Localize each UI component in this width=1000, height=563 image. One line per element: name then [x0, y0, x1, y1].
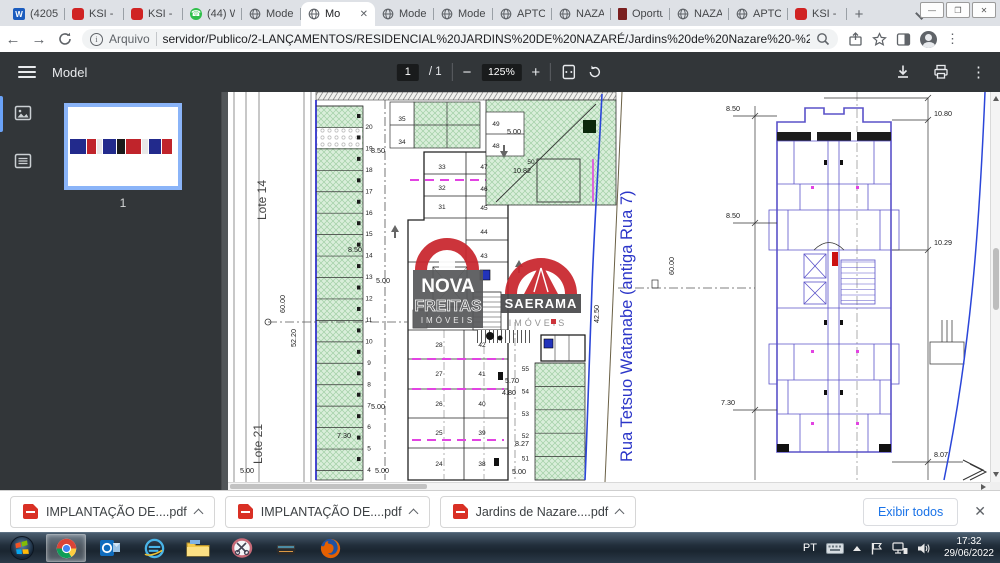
download-chip-2[interactable]: Jardins de Nazare....pdf [440, 496, 637, 528]
dimension-label: 10.29 [934, 238, 952, 247]
dimension-label: 8.50 [371, 146, 385, 155]
page-number-input[interactable]: 1 [397, 64, 419, 81]
scroll-down-arrow[interactable] [993, 472, 999, 477]
browser-tab-4[interactable]: Model [242, 2, 301, 26]
page-thumbnail[interactable] [68, 107, 178, 186]
svg-text:NOVA: NOVA [421, 276, 475, 297]
downloads-close-icon[interactable]: ✕ [974, 503, 986, 520]
new-tab-button[interactable]: + [847, 2, 871, 26]
globe-favicon-icon [441, 8, 453, 20]
ie-taskbar-icon[interactable] [134, 534, 174, 562]
tab-label: Model [399, 8, 427, 20]
browser-tab-5[interactable]: Mo✕ [301, 2, 375, 26]
page-total: / 1 [429, 66, 442, 78]
pdf-menu-icon[interactable] [18, 63, 36, 81]
tab-label: Model [266, 8, 294, 20]
download-file-name: IMPLANTAÇÃO DE....pdf [261, 505, 402, 519]
browser-tab-3[interactable]: ☎(44) Wh [183, 2, 242, 26]
stall-number: 47 [480, 164, 488, 171]
forward-icon[interactable]: → [26, 31, 52, 48]
thumbnails-view-icon[interactable] [14, 104, 32, 122]
stall-number: 45 [480, 205, 488, 212]
stall-number: 54 [522, 388, 530, 395]
stall-number: 43 [480, 253, 488, 260]
doc-favicon-icon [618, 8, 627, 20]
pdf-overflow-icon[interactable]: ⋮ [971, 63, 986, 81]
share-icon[interactable] [848, 32, 863, 47]
stall-number: 14 [365, 253, 373, 260]
zoom-icon[interactable] [816, 32, 830, 46]
chevron-up-icon[interactable] [615, 508, 625, 518]
chrome-taskbar-icon[interactable] [46, 534, 86, 562]
ksi-favicon-icon [72, 8, 84, 20]
dimension-label: 5.00 [375, 466, 389, 475]
network-icon[interactable] [892, 542, 908, 555]
maximize-button[interactable]: ❐ [946, 2, 970, 18]
thumbnail-page-number: 1 [68, 196, 178, 210]
stall-number: 6 [367, 424, 371, 431]
apartment-plan [733, 92, 986, 482]
tab-label: Oportu [632, 8, 663, 20]
dimension-label: 8.50 [348, 245, 362, 254]
svg-text:FREITAS: FREITAS [414, 298, 482, 315]
address-bar: ← → i Arquivo servidor/Publico/2-LANÇAME… [0, 26, 1000, 52]
stall-number: 49 [492, 121, 500, 128]
svg-text:IMÓVEIS: IMÓVEIS [421, 316, 475, 325]
stall-number: 41 [478, 371, 486, 378]
svg-text:IMÓVEIS: IMÓVEIS [509, 318, 568, 328]
browser-tab-9[interactable]: NAZAR [552, 2, 611, 26]
language-indicator[interactable]: PT [803, 542, 817, 554]
side-panel-icon[interactable] [896, 32, 911, 47]
zoom-out-icon[interactable]: − [463, 64, 472, 81]
stall-number: 39 [478, 430, 486, 437]
dimension-label: 52.20 [289, 329, 298, 347]
stall-number: 32 [438, 185, 446, 192]
pdf-file-icon [453, 504, 468, 519]
stall-number: 48 [492, 143, 500, 150]
stall-number: 25 [435, 430, 443, 437]
sidebar-selected-indicator [0, 96, 3, 132]
stall-number: 24 [435, 461, 443, 468]
dimension-label: 5.00 [376, 276, 390, 285]
rotate-icon[interactable] [587, 64, 603, 80]
globe-favicon-icon [382, 8, 394, 20]
stall-number: 33 [438, 164, 446, 171]
tab-label: (44) Wh [207, 8, 235, 20]
browser-tab-0[interactable]: W(4205) L [6, 2, 65, 26]
horizontal-scroll-thumb[interactable] [230, 484, 427, 489]
outlook-taskbar-icon[interactable] [90, 534, 130, 562]
system-tray: PT 17:32 29/06/2022 [803, 536, 994, 560]
sidewalk-hatch [316, 92, 616, 100]
dimension-label: 60.00 [667, 257, 676, 275]
globe-favicon-icon [249, 8, 261, 20]
stall-number: 13 [365, 274, 373, 281]
stall-number: 42 [478, 342, 486, 349]
download-chip-0[interactable]: IMPLANTAÇÃO DE....pdf [10, 496, 215, 528]
stall-number: 15 [365, 231, 373, 238]
download-icon[interactable] [895, 64, 911, 80]
pdf-viewer-body: 1 [0, 92, 1000, 490]
horizontal-scrollbar[interactable] [228, 482, 990, 490]
site-plan-drawing: Lote 14Lote 21Rua Tetsuo Watanabe (antig… [228, 92, 990, 482]
stall-number: 4 [367, 467, 371, 474]
thumbnail-panel: 1 [45, 92, 222, 490]
browser-menu-icon[interactable]: ⋮ [946, 31, 959, 47]
tab-label: Model [458, 8, 486, 20]
dimension-label: 8.07 [934, 450, 948, 459]
stall-number: 40 [478, 401, 486, 408]
dimension-label: 42.50 [592, 305, 601, 323]
svg-text:SAERAMA: SAERAMA [505, 296, 578, 311]
profile-avatar[interactable] [920, 31, 937, 48]
stall-number: 8 [367, 381, 371, 388]
browser-tab-2[interactable]: KSI - K [124, 2, 183, 26]
omnibox[interactable]: i Arquivo servidor/Publico/2-LANÇAMENTOS… [82, 29, 838, 49]
tab-label: APTOS [753, 8, 781, 20]
browser-tab-11[interactable]: NAZAR [670, 2, 729, 26]
dimension-label: 5.00 [507, 127, 521, 136]
stall-number: 51 [522, 456, 530, 463]
back-icon[interactable]: ← [0, 31, 26, 48]
street-name-label: Rua Tetsuo Watanabe (antiga Rua 7) [618, 190, 636, 462]
tab-label: Mo [325, 8, 353, 20]
stall-number: 17 [365, 188, 373, 195]
taskbar-clock[interactable]: 17:32 29/06/2022 [944, 536, 994, 560]
volume-icon[interactable] [917, 542, 931, 555]
stall-number: 18 [365, 167, 373, 174]
left-parking-strip [316, 100, 363, 480]
stall-number: 35 [398, 116, 406, 123]
stall-number: 16 [365, 210, 373, 217]
zoom-level[interactable]: 125% [481, 64, 521, 81]
ksi-favicon-icon [131, 8, 143, 20]
dimension-label: 10.80 [934, 109, 952, 118]
print-icon[interactable] [933, 64, 949, 80]
dimension-label: 60.00 [278, 295, 287, 313]
stall-number: 5 [367, 446, 371, 453]
floorplan-page: Lote 14Lote 21Rua Tetsuo Watanabe (antig… [228, 92, 990, 482]
lot-boundary-lines [234, 92, 311, 482]
snipping-taskbar-icon[interactable] [222, 534, 262, 562]
browser-tab-12[interactable]: APTOS [729, 2, 788, 26]
explorer-taskbar-icon[interactable] [178, 534, 218, 562]
dimension-label: 8.27 [515, 439, 529, 448]
stall-number: 53 [522, 411, 530, 418]
browser-tab-7[interactable]: Model [434, 2, 493, 26]
dimension-label: 10.82 [513, 166, 531, 175]
stall-number: 31 [438, 204, 446, 211]
tab-label: APTOS [517, 8, 545, 20]
downloads-bar: IMPLANTAÇÃO DE....pdfIMPLANTAÇÃO DE....p… [0, 490, 1000, 532]
tab-label: NAZAR [694, 8, 722, 20]
minimize-button[interactable]: — [920, 2, 944, 18]
dimension-label: 5.70 [505, 376, 519, 385]
stall-number: 44 [480, 229, 488, 236]
download-file-name: Jardins de Nazare....pdf [476, 505, 609, 519]
right-parking-strip [535, 363, 585, 480]
vertical-scrollbar[interactable] [990, 92, 1000, 482]
browser-tab-1[interactable]: KSI - K [65, 2, 124, 26]
lote-21-label: Lote 21 [251, 424, 265, 464]
dimension-label: 8.50 [726, 104, 740, 113]
stall-number: 12 [365, 296, 373, 303]
stall-number: 38 [478, 461, 486, 468]
stall-number: 46 [480, 186, 488, 193]
stall-number: 11 [366, 317, 373, 324]
taskbar: PT 17:32 29/06/2022 [0, 532, 1000, 563]
word-favicon-icon: W [13, 8, 25, 20]
stall-number: 20 [365, 124, 373, 131]
dimension-label: 7.30 [337, 431, 351, 440]
pdf-toolbar: Model 1 / 1 − 125% + ⋮ [0, 52, 1000, 92]
desktop: { "browser": { "tabs": [ {"label":"(4205… [0, 0, 1000, 562]
download-file-name: IMPLANTAÇÃO DE....pdf [46, 505, 187, 519]
tab-label: KSI - K [812, 8, 840, 20]
window-controls: — ❐ ✕ [920, 2, 996, 18]
dimension-label: 5.00 [512, 467, 526, 476]
stall-number: 10 [365, 338, 373, 345]
pdf-title: Model [52, 65, 87, 80]
browser-tab-8[interactable]: APTOS [493, 2, 552, 26]
reload-icon[interactable] [52, 31, 78, 47]
start-button[interactable] [2, 534, 42, 562]
url-text[interactable]: servidor/Publico/2-LANÇAMENTOS/RESIDENCI… [162, 32, 810, 46]
outline-view-icon[interactable] [14, 152, 32, 170]
browser-tab-6[interactable]: Model [375, 2, 434, 26]
firefox-taskbar-icon[interactable] [310, 534, 350, 562]
chevron-up-icon[interactable] [193, 508, 203, 518]
watermark-saerama: SAERAMA IMÓVEIS [501, 258, 581, 328]
dimension-label: 7.30 [721, 398, 735, 407]
url-scheme-label: Arquivo [109, 32, 150, 46]
pdf-file-icon [23, 504, 38, 519]
action-center-flag-icon[interactable] [870, 542, 883, 555]
dimension-label: 5.00 [240, 466, 254, 475]
stall-number: 34 [398, 139, 406, 146]
browser-tab-13[interactable]: KSI - K [788, 2, 847, 26]
stall-number: 50 [527, 159, 535, 166]
tab-label: (4205) L [30, 8, 58, 20]
zoom-in-icon[interactable]: + [531, 64, 540, 81]
vertical-scroll-thumb[interactable] [993, 248, 999, 310]
tray-expand-icon[interactable] [853, 546, 861, 551]
globe-favicon-icon [736, 8, 748, 20]
info-icon[interactable]: i [90, 33, 103, 46]
stall-number: 55 [522, 366, 530, 373]
tab-close-icon[interactable]: ✕ [360, 9, 368, 20]
pdf-sidebar-iconstrip [0, 92, 45, 490]
thumbnail-preview [70, 138, 176, 155]
fit-page-icon[interactable] [561, 64, 577, 80]
dimension-label: 4.80 [502, 388, 516, 397]
stall-number: 27 [435, 371, 443, 378]
pump-house [477, 330, 585, 361]
globe-favicon-icon [500, 8, 512, 20]
close-button[interactable]: ✕ [972, 2, 996, 18]
dimension-label: 5.00 [371, 402, 385, 411]
scroll-up-arrow[interactable] [993, 96, 999, 101]
ksi-favicon-icon [795, 8, 807, 20]
lote-14-label: Lote 14 [255, 180, 269, 220]
watermark-nova-freitas: NOVA FREITAS IMÓVEIS [413, 238, 483, 328]
bookmark-star-icon[interactable] [872, 32, 887, 47]
stall-number: 28 [435, 342, 443, 349]
whatsapp-favicon-icon: ☎ [190, 8, 202, 20]
globe-favicon-icon [677, 8, 689, 20]
tab-label: NAZAR [576, 8, 604, 20]
download-chip-1[interactable]: IMPLANTAÇÃO DE....pdf [225, 496, 430, 528]
stall-number: 9 [367, 360, 371, 367]
browser-tab-10[interactable]: Oportu [611, 2, 670, 26]
globe-favicon-icon [308, 8, 320, 20]
browser-tab-strip: W(4205) LKSI - KKSI - K☎(44) WhModelMo✕M… [0, 0, 1000, 26]
tab-label: KSI - K [89, 8, 117, 20]
scanner-taskbar-icon[interactable] [266, 534, 306, 562]
dimension-label: 8.50 [726, 211, 740, 220]
stall-number: 26 [435, 401, 443, 408]
keyboard-icon[interactable] [826, 543, 844, 554]
chevron-up-icon[interactable] [408, 508, 418, 518]
globe-favicon-icon [559, 8, 571, 20]
show-all-downloads-button[interactable]: Exibir todos [863, 498, 958, 526]
tab-label: KSI - K [148, 8, 176, 20]
pdf-file-icon [238, 504, 253, 519]
